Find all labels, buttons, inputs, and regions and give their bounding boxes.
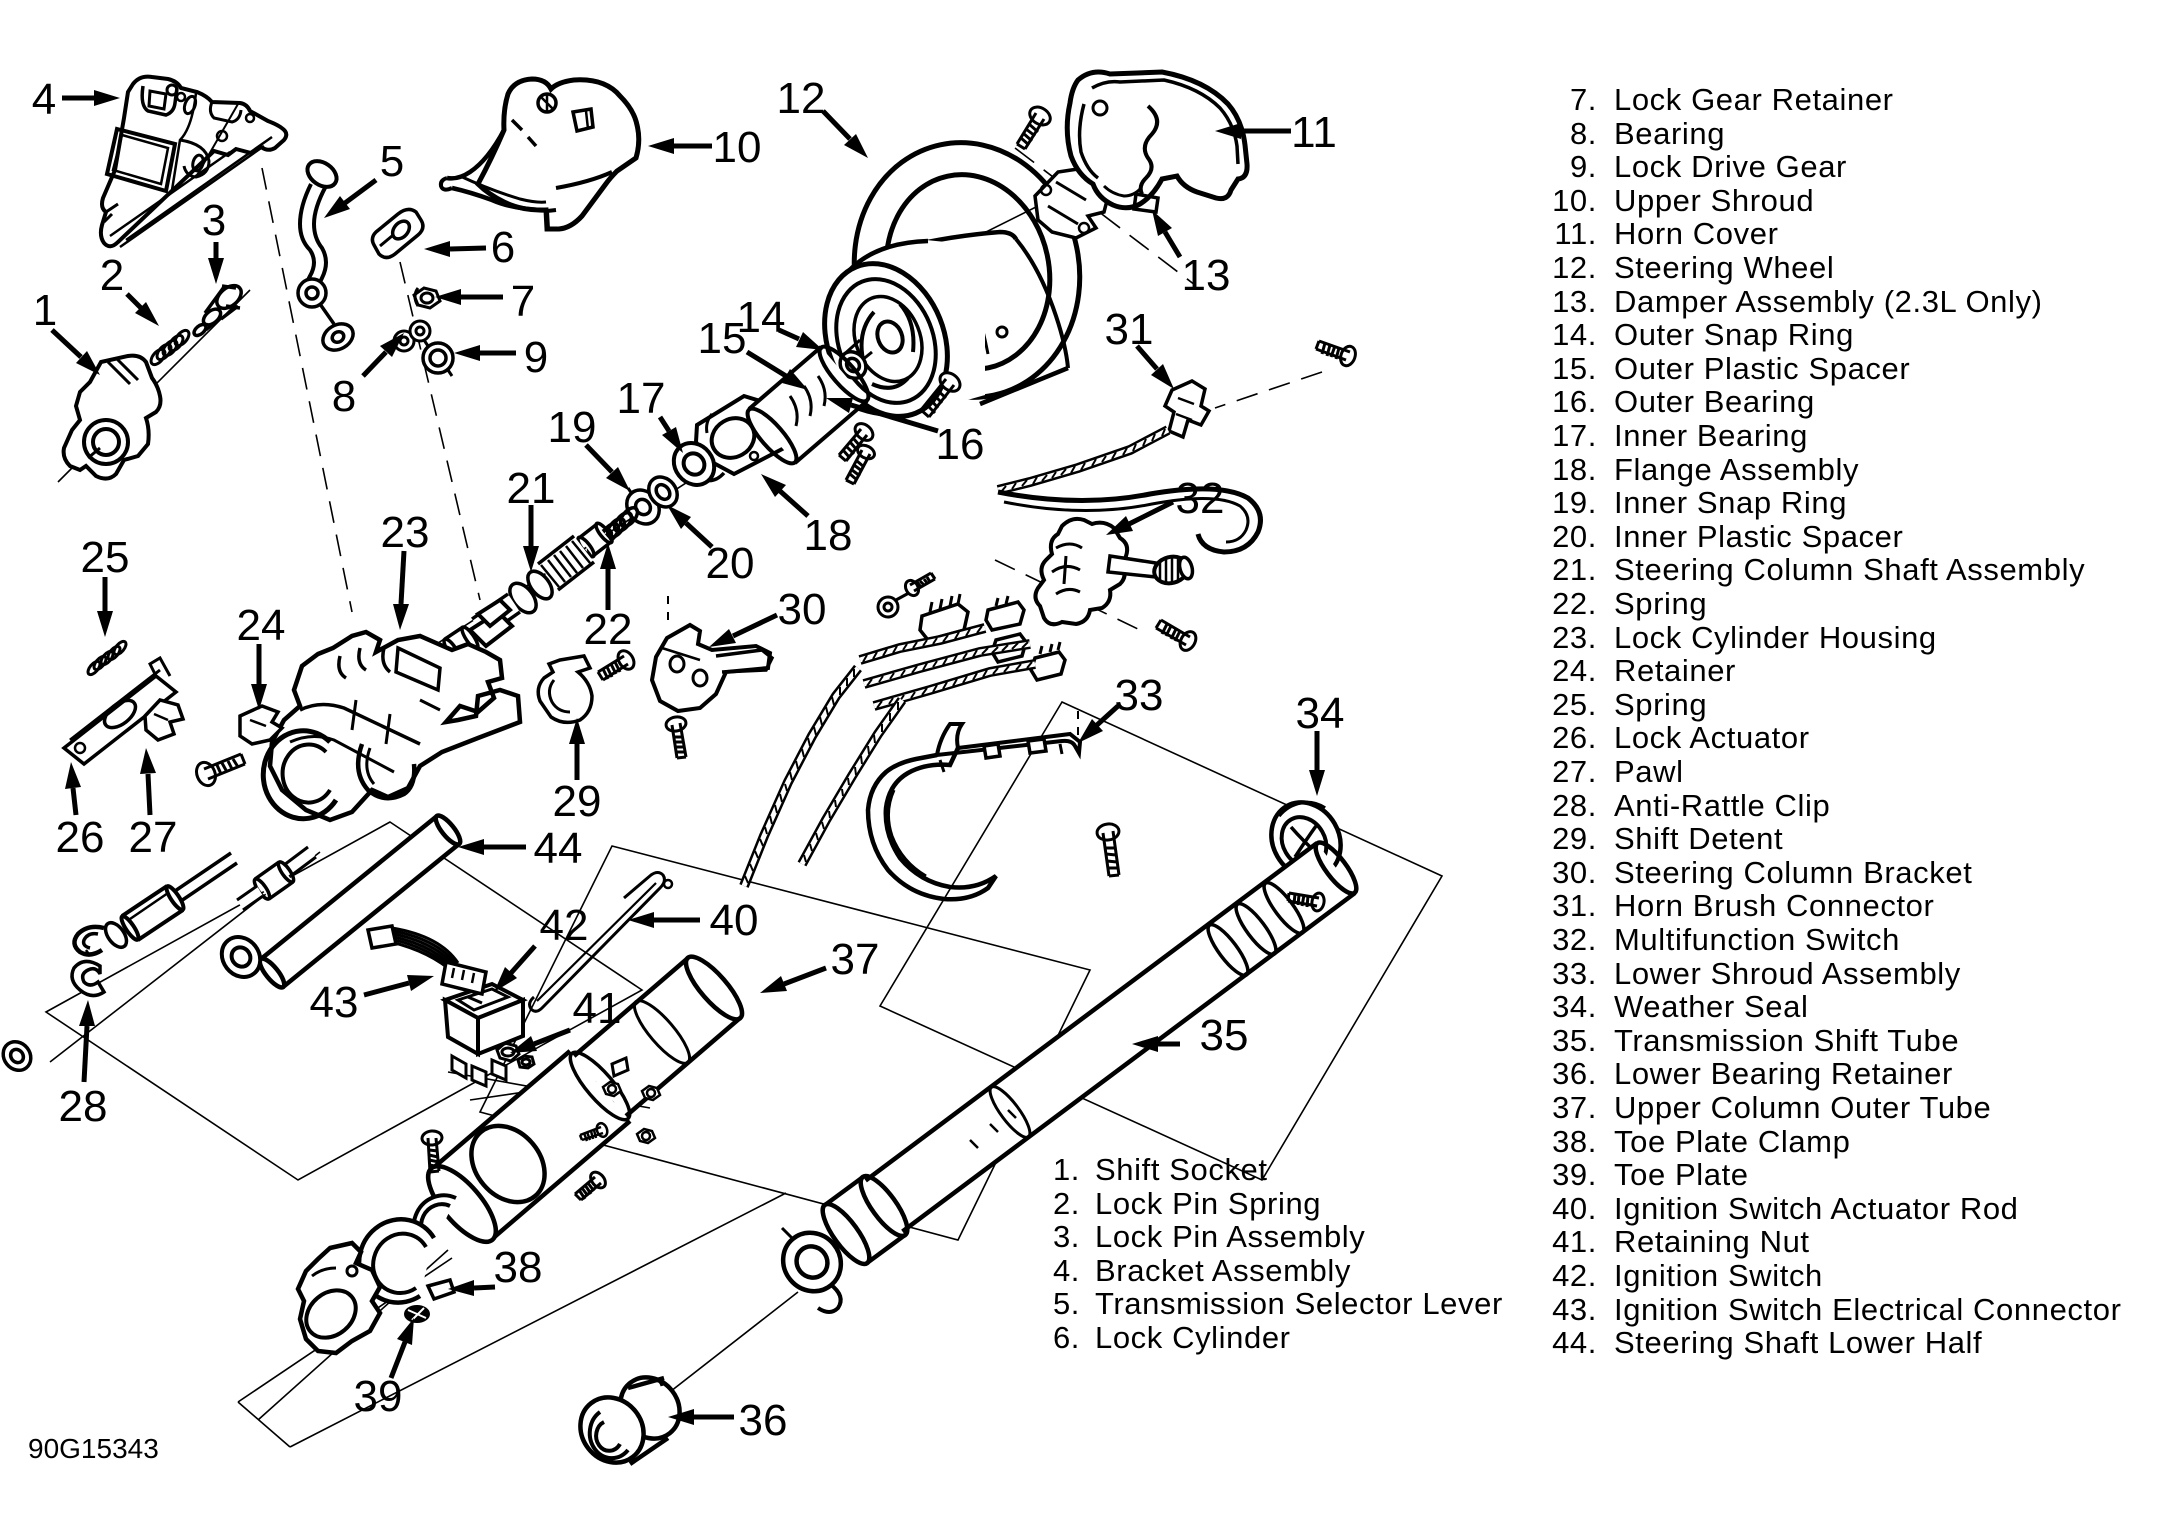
svg-text:Shift Detent: Shift Detent xyxy=(1614,821,1783,856)
svg-text:12.: 12. xyxy=(1552,250,1597,285)
svg-text:26: 26 xyxy=(56,813,105,862)
svg-text:Lock Cylinder: Lock Cylinder xyxy=(1095,1320,1291,1355)
svg-text:41.: 41. xyxy=(1552,1224,1597,1259)
svg-text:14.: 14. xyxy=(1552,317,1597,352)
svg-text:23.: 23. xyxy=(1552,620,1597,655)
svg-text:8: 8 xyxy=(332,372,356,421)
svg-text:Pawl: Pawl xyxy=(1614,754,1684,789)
svg-text:1: 1 xyxy=(33,286,57,335)
svg-text:23: 23 xyxy=(381,508,430,557)
svg-text:35.: 35. xyxy=(1552,1023,1597,1058)
svg-text:Inner Plastic Spacer: Inner Plastic Spacer xyxy=(1614,519,1903,554)
svg-text:Steering Column Bracket: Steering Column Bracket xyxy=(1614,855,1972,890)
svg-text:Upper Shroud: Upper Shroud xyxy=(1614,183,1814,218)
svg-text:22: 22 xyxy=(584,605,633,654)
svg-text:Bracket Assembly: Bracket Assembly xyxy=(1095,1253,1351,1288)
svg-text:Ignition Switch Actuator Rod: Ignition Switch Actuator Rod xyxy=(1614,1191,2019,1226)
svg-text:12: 12 xyxy=(777,74,826,123)
svg-text:3: 3 xyxy=(202,196,226,245)
svg-text:Inner Bearing: Inner Bearing xyxy=(1614,418,1808,453)
svg-text:11: 11 xyxy=(1291,108,1337,157)
svg-text:20: 20 xyxy=(706,539,755,588)
svg-text:24.: 24. xyxy=(1552,653,1597,688)
svg-text:44: 44 xyxy=(534,824,583,873)
svg-text:27: 27 xyxy=(129,813,178,862)
svg-text:1.: 1. xyxy=(1053,1152,1080,1187)
svg-text:Lower Bearing Retainer: Lower Bearing Retainer xyxy=(1614,1056,1953,1091)
svg-text:Damper Assembly (2.3L Only): Damper Assembly (2.3L Only) xyxy=(1614,284,2043,319)
svg-text:Steering Wheel: Steering Wheel xyxy=(1614,250,1834,285)
svg-text:44.: 44. xyxy=(1552,1325,1597,1360)
svg-text:15: 15 xyxy=(698,314,747,363)
svg-text:Weather Seal: Weather Seal xyxy=(1614,989,1808,1024)
svg-text:26.: 26. xyxy=(1552,720,1597,755)
svg-text:Upper Column Outer Tube: Upper Column Outer Tube xyxy=(1614,1090,1991,1125)
svg-text:17: 17 xyxy=(617,374,666,423)
svg-text:30.: 30. xyxy=(1552,855,1597,890)
svg-text:Anti-Rattle Clip: Anti-Rattle Clip xyxy=(1614,788,1830,823)
svg-text:38: 38 xyxy=(494,1243,543,1292)
svg-text:Inner Snap Ring: Inner Snap Ring xyxy=(1614,485,1847,520)
svg-text:Retainer: Retainer xyxy=(1614,653,1736,688)
svg-text:39.: 39. xyxy=(1552,1157,1597,1192)
svg-text:9.: 9. xyxy=(1570,149,1597,184)
svg-text:Multifunction Switch: Multifunction Switch xyxy=(1614,922,1900,957)
svg-text:29.: 29. xyxy=(1552,821,1597,856)
svg-text:20.: 20. xyxy=(1552,519,1597,554)
svg-text:Lower Shroud Assembly: Lower Shroud Assembly xyxy=(1614,956,1961,991)
svg-text:Steering Column Shaft Assembly: Steering Column Shaft Assembly xyxy=(1614,552,2085,587)
svg-text:39: 39 xyxy=(354,1372,403,1421)
svg-text:2: 2 xyxy=(100,251,124,300)
svg-text:Ignition Switch: Ignition Switch xyxy=(1614,1258,1823,1293)
svg-text:Toe Plate: Toe Plate xyxy=(1614,1157,1749,1192)
svg-text:36: 36 xyxy=(739,1396,788,1445)
svg-text:40.: 40. xyxy=(1552,1191,1597,1226)
svg-text:Retaining Nut: Retaining Nut xyxy=(1614,1224,1810,1259)
svg-text:31.: 31. xyxy=(1552,888,1597,923)
svg-text:28.: 28. xyxy=(1552,788,1597,823)
svg-text:Spring: Spring xyxy=(1614,586,1707,621)
svg-text:37.: 37. xyxy=(1552,1090,1597,1125)
svg-text:4.: 4. xyxy=(1053,1253,1080,1288)
svg-text:33.: 33. xyxy=(1552,956,1597,991)
svg-text:35: 35 xyxy=(1200,1011,1249,1060)
svg-text:25.: 25. xyxy=(1552,687,1597,722)
svg-text:42.: 42. xyxy=(1552,1258,1597,1293)
svg-text:21.: 21. xyxy=(1552,552,1597,587)
svg-text:5.: 5. xyxy=(1053,1286,1080,1321)
svg-text:7: 7 xyxy=(511,277,535,326)
svg-text:11.: 11. xyxy=(1554,216,1597,251)
svg-text:18: 18 xyxy=(804,511,853,560)
svg-text:43.: 43. xyxy=(1552,1292,1597,1327)
svg-text:Shift Socket: Shift Socket xyxy=(1095,1152,1268,1187)
svg-text:Lock Actuator: Lock Actuator xyxy=(1614,720,1810,755)
svg-text:Horn Cover: Horn Cover xyxy=(1614,216,1779,251)
svg-text:37: 37 xyxy=(831,935,880,984)
svg-text:32: 32 xyxy=(1176,474,1225,523)
svg-text:10.: 10. xyxy=(1552,183,1597,218)
svg-text:Ignition Switch Electrical Con: Ignition Switch Electrical Connector xyxy=(1614,1292,2122,1327)
svg-text:32.: 32. xyxy=(1552,922,1597,957)
svg-text:13.: 13. xyxy=(1552,284,1597,319)
svg-text:31: 31 xyxy=(1105,305,1154,354)
svg-text:40: 40 xyxy=(710,896,759,945)
svg-text:33: 33 xyxy=(1115,671,1164,720)
svg-text:22.: 22. xyxy=(1552,586,1597,621)
svg-text:Transmission Selector Lever: Transmission Selector Lever xyxy=(1095,1286,1503,1321)
svg-text:34: 34 xyxy=(1296,689,1345,738)
svg-text:16.: 16. xyxy=(1552,384,1597,419)
svg-text:Steering Shaft Lower Half: Steering Shaft Lower Half xyxy=(1614,1325,1982,1360)
svg-text:6: 6 xyxy=(491,223,515,272)
svg-text:4: 4 xyxy=(32,75,56,124)
svg-text:25: 25 xyxy=(81,533,130,582)
svg-text:43: 43 xyxy=(310,978,359,1027)
svg-text:Toe Plate Clamp: Toe Plate Clamp xyxy=(1614,1124,1850,1159)
svg-text:3.: 3. xyxy=(1053,1219,1080,1254)
svg-text:Spring: Spring xyxy=(1614,687,1707,722)
svg-text:5: 5 xyxy=(380,137,404,186)
svg-text:17.: 17. xyxy=(1552,418,1597,453)
svg-text:90G15343: 90G15343 xyxy=(28,1433,159,1464)
svg-text:28: 28 xyxy=(59,1082,108,1131)
svg-text:Outer Bearing: Outer Bearing xyxy=(1614,384,1815,419)
svg-text:Lock Gear Retainer: Lock Gear Retainer xyxy=(1614,82,1894,117)
svg-text:8.: 8. xyxy=(1570,116,1597,151)
svg-text:Lock Pin Assembly: Lock Pin Assembly xyxy=(1095,1219,1365,1254)
svg-text:16: 16 xyxy=(936,420,985,469)
svg-text:Outer Snap Ring: Outer Snap Ring xyxy=(1614,317,1854,352)
svg-text:38.: 38. xyxy=(1552,1124,1597,1159)
svg-text:2.: 2. xyxy=(1053,1186,1080,1221)
svg-text:Horn Brush Connector: Horn Brush Connector xyxy=(1614,888,1934,923)
svg-text:36.: 36. xyxy=(1552,1056,1597,1091)
svg-text:Transmission Shift Tube: Transmission Shift Tube xyxy=(1614,1023,1959,1058)
svg-text:7.: 7. xyxy=(1570,82,1597,117)
svg-text:Flange Assembly: Flange Assembly xyxy=(1614,452,1859,487)
svg-text:Lock Pin Spring: Lock Pin Spring xyxy=(1095,1186,1321,1221)
svg-text:6.: 6. xyxy=(1053,1320,1080,1355)
svg-text:30: 30 xyxy=(778,585,827,634)
svg-text:29: 29 xyxy=(553,777,602,826)
svg-text:9: 9 xyxy=(524,333,548,382)
svg-text:27.: 27. xyxy=(1552,754,1597,789)
svg-text:18.: 18. xyxy=(1552,452,1597,487)
svg-text:Lock Drive Gear: Lock Drive Gear xyxy=(1614,149,1847,184)
svg-text:42: 42 xyxy=(540,901,589,950)
svg-text:15.: 15. xyxy=(1552,351,1597,386)
svg-text:Outer Plastic Spacer: Outer Plastic Spacer xyxy=(1614,351,1910,386)
svg-text:34.: 34. xyxy=(1552,989,1597,1024)
svg-text:Bearing: Bearing xyxy=(1614,116,1725,151)
svg-text:Lock Cylinder Housing: Lock Cylinder Housing xyxy=(1614,620,1937,655)
svg-text:41: 41 xyxy=(573,984,622,1033)
svg-text:19.: 19. xyxy=(1552,485,1597,520)
svg-text:10: 10 xyxy=(713,123,762,172)
svg-text:13: 13 xyxy=(1182,251,1231,300)
svg-text:24: 24 xyxy=(237,601,286,650)
